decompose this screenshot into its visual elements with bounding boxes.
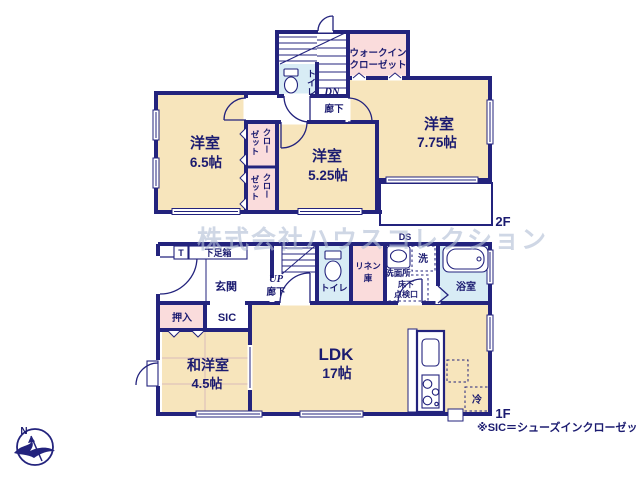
label-room65-size: 6.5帖 [190,154,223,170]
label-wic-line2: クローゼット [349,59,406,71]
label-hatch-line1: 床下 [398,279,414,289]
label-room65-name: 洋室 [190,134,220,152]
label-closet-top-col1: クロー [262,127,272,153]
balcony [380,183,492,225]
label-genkan: 玄関 [215,279,237,293]
label-sic: SIC [218,312,236,324]
label-washitsu-name: 和洋室 [187,357,229,373]
label-hall-1f: 廊下 [266,286,286,298]
label-up: UP [269,274,284,285]
label-room775-name: 洋室 [424,115,454,133]
watermark: 株式会社ハウスコレクション [197,225,548,254]
compass: N [14,426,55,465]
label-closet-bottom-col2: ゼット [250,174,260,200]
floorplan-canvas: 洋室 6.5帖 洋室 5.25帖 洋室 7.75帖 ウォークイン クローゼット … [0,0,640,480]
label-ldk-name: LDK [319,345,355,364]
room-ldk [252,305,488,412]
kitchen-counter [408,329,444,412]
label-room525-name: 洋室 [312,147,342,165]
label-room775-size: 7.75帖 [417,134,457,150]
label-bath: 浴室 [456,280,476,293]
label-washroom: 洗面所 [385,268,411,278]
label-linen-line2: 庫 [364,273,373,283]
label-closet-bottom-col1: クロー [262,172,272,198]
label-toilet-1f: トイレ [320,283,347,293]
label-shoe-t: T [178,248,184,258]
compass-north: N [20,426,27,437]
toilet-icon-2f [284,69,298,93]
label-dn: DN [323,87,340,98]
label-linen-line1: リネン [355,261,381,271]
kitchen-sink-icon [422,339,439,366]
label-wic-line1: ウォークイン [349,48,406,59]
label-room525-size: 5.25帖 [308,167,348,183]
label-washitsu-size: 4.5帖 [191,376,222,391]
label-fridge: 冷 [472,393,482,406]
label-hall-2f: 廊下 [324,103,344,115]
label-1f: 1F [495,406,510,421]
floor-1f: 玄関 T 下足箱 押入 SIC 和洋室 4.5帖 LDK 17帖 UP 廊下 ト… [136,232,640,434]
floor-2f: 洋室 6.5帖 洋室 5.25帖 洋室 7.75帖 ウォークイン クローゼット … [153,16,511,229]
label-closet-top-col2: ゼット [250,129,260,155]
label-oshiire: 押入 [172,311,192,324]
label-sic-note: ※SIC＝シューズインクローゼット [477,420,640,434]
label-ldk-size: 17帖 [322,365,352,381]
room-yoshitsu-6-5 [158,93,246,212]
toilet-icon-1f [325,251,341,281]
label-hatch-line2: 点検口 [394,289,418,299]
back-door [448,409,463,421]
label-toilet-2f: トイレ [306,69,316,96]
